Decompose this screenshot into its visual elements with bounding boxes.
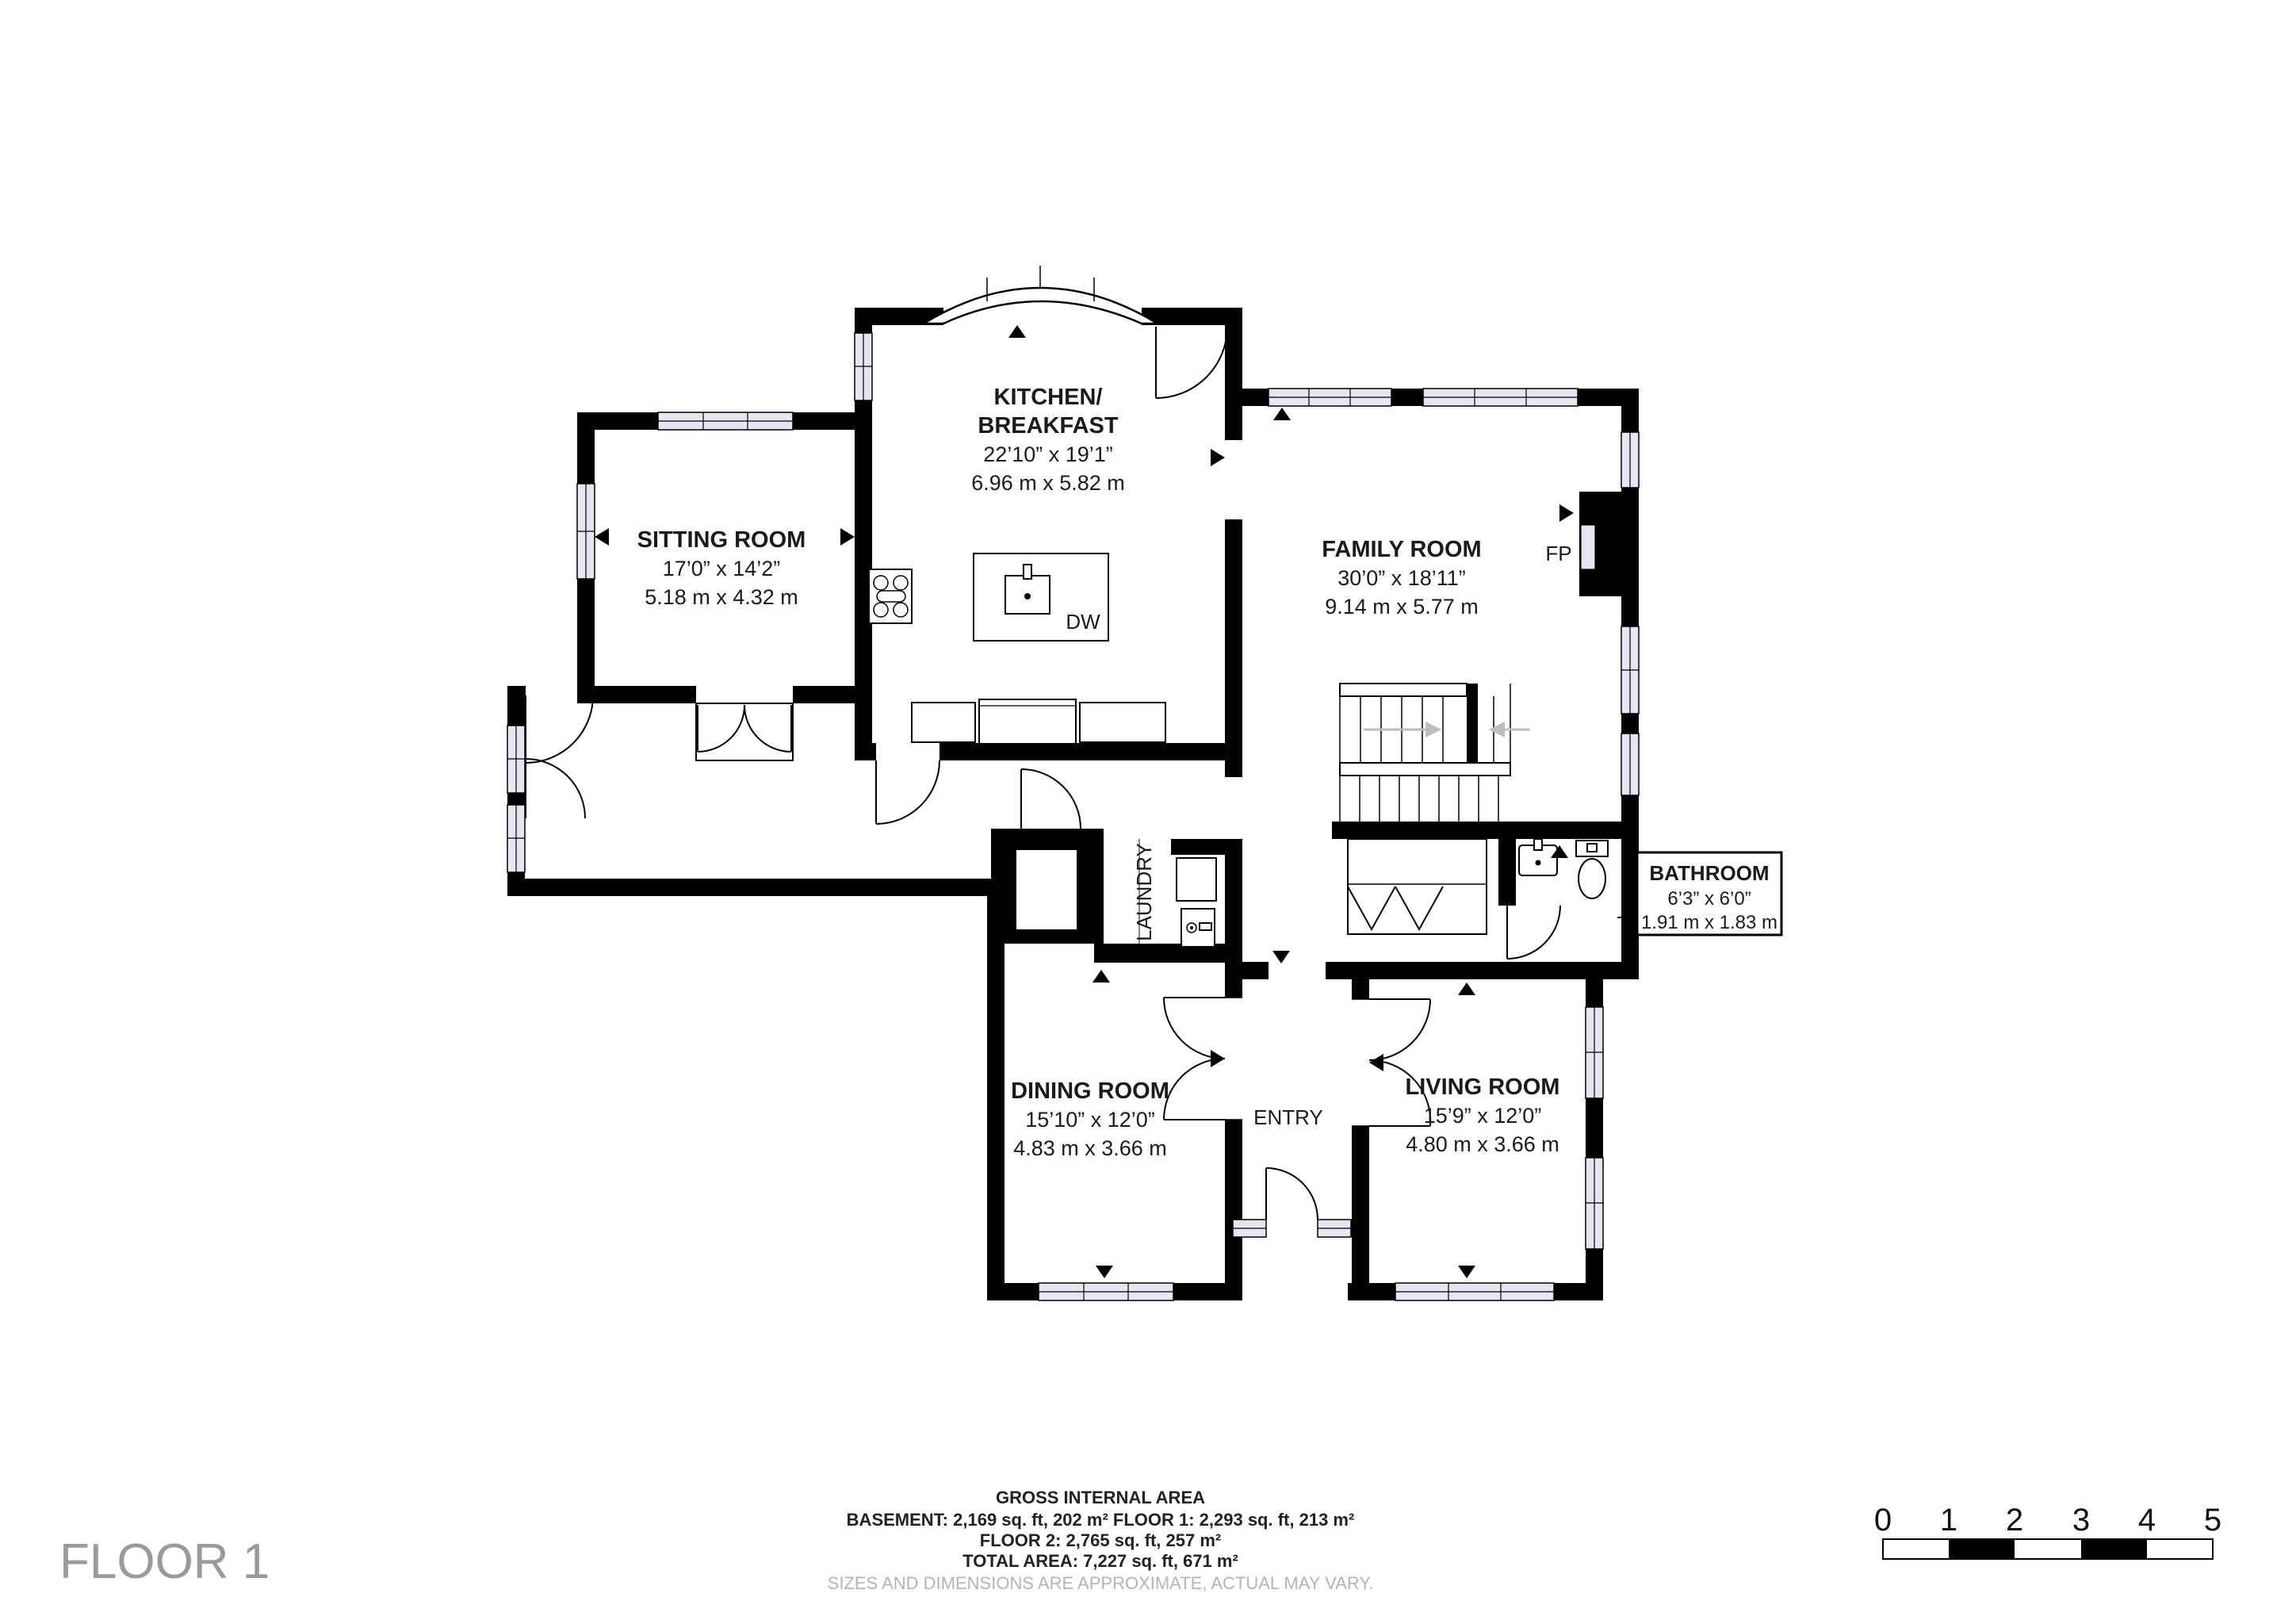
scale-tick: 1 — [1940, 1503, 1957, 1538]
room-name: FAMILY ROOM — [1322, 537, 1481, 562]
door-hall-lower — [526, 759, 585, 818]
french-doors-living — [1352, 999, 1430, 1126]
bathroom-callout: BATHROOM 6’3” x 6’0” 1.91 m x 1.83 m — [1617, 852, 1781, 935]
window-sidelight — [1318, 1220, 1351, 1237]
room-dims-metric: 1.91 m x 1.83 m — [1641, 912, 1777, 933]
window — [1621, 626, 1639, 714]
window — [1586, 1007, 1603, 1098]
stair-direction-arrows — [1364, 722, 1530, 737]
door-sitting-hall — [526, 695, 593, 763]
room-dims-imperial: 22’10” x 19’1” — [983, 442, 1113, 466]
area-line-floor2: FLOOR 2: 2,765 sq. ft, 257 m² — [980, 1530, 1221, 1550]
room-dims-imperial: 30’0” x 18’11” — [1337, 566, 1466, 590]
room-name: DINING ROOM — [1011, 1078, 1169, 1104]
room-dims-metric: 5.18 m x 4.32 m — [645, 585, 798, 609]
scale-tick: 0 — [1874, 1503, 1892, 1538]
dryer-icon — [1181, 909, 1215, 947]
scale-bar-segment — [1949, 1539, 2015, 1559]
scale-tick: 2 — [2006, 1503, 2023, 1538]
room-name: SITTING ROOM — [637, 527, 806, 553]
fireplace-label: FP — [1545, 542, 1571, 565]
kitchen-counters — [912, 699, 1165, 744]
bay-window-icon — [924, 266, 1158, 324]
room-dims-imperial: 15’9” x 12’0” — [1424, 1104, 1542, 1128]
label-kitchen: KITCHEN/ BREAKFAST 22’10” x 19’1” 6.96 m… — [971, 385, 1125, 495]
kitchen-island: DW — [974, 553, 1108, 641]
room-dims-imperial: 15’10” x 12’0” — [1025, 1108, 1155, 1132]
scale-tick: 5 — [2204, 1503, 2221, 1538]
dishwasher-label: DW — [1066, 610, 1100, 634]
window-sidelight — [1233, 1220, 1266, 1237]
window — [577, 484, 595, 579]
closet-double-doors — [696, 703, 793, 760]
window — [1039, 1283, 1173, 1300]
area-summary-title: GROSS INTERNAL AREA — [996, 1488, 1205, 1507]
label-sitting: SITTING ROOM 17’0” x 14’2” 5.18 m x 4.32… — [637, 527, 806, 609]
stair-mid-rail — [1340, 763, 1510, 776]
washer-icon — [1177, 858, 1216, 901]
room-name: LIVING ROOM — [1406, 1074, 1560, 1100]
window — [1423, 389, 1578, 406]
room-name: BREAKFAST — [978, 413, 1119, 439]
stair-landing-rail — [1340, 684, 1467, 696]
floor-title: FLOOR 1 — [59, 1534, 270, 1589]
firebox — [1581, 525, 1595, 569]
room-dims-metric: 6.96 m x 5.82 m — [971, 471, 1125, 495]
stove-icon — [869, 569, 912, 623]
toilet-icon — [1576, 841, 1608, 898]
room-dims-metric: 4.83 m x 3.66 m — [1013, 1136, 1167, 1160]
scale-bar: 0 1 2 3 4 5 — [1874, 1503, 2221, 1559]
door-kitchen-hall — [876, 760, 939, 824]
window — [1395, 1283, 1554, 1300]
door-closet-midhall — [1021, 769, 1081, 829]
area-summary: GROSS INTERNAL AREA BASEMENT: 2,169 sq. … — [828, 1488, 1374, 1593]
room-dims-imperial: 6’3” x 6’0” — [1667, 888, 1751, 910]
scale-bar-segment — [2081, 1539, 2147, 1559]
window — [1621, 733, 1639, 795]
label-dining: DINING ROOM 15’10” x 12’0” 4.83 m x 3.66… — [1011, 1078, 1169, 1160]
disclaimer-text: SIZES AND DIMENSIONS ARE APPROXIMATE, AC… — [828, 1573, 1374, 1593]
front-door — [1266, 1168, 1318, 1220]
floorplan-canvas: DW — [0, 0, 2296, 1624]
room-dims-metric: 4.80 m x 3.66 m — [1406, 1132, 1559, 1156]
french-doors-dining — [1164, 998, 1242, 1120]
area-line-basement-floor1: BASEMENT: 2,169 sq. ft, 202 m² FLOOR 1: … — [847, 1510, 1355, 1530]
door-kitchen — [1156, 327, 1227, 398]
label-entry: ENTRY — [1253, 1105, 1323, 1129]
label-laundry: LAUNDRY — [1132, 843, 1156, 941]
floorplan-page: DW — [0, 0, 2296, 1624]
bathroom-fixtures — [1519, 839, 1608, 898]
label-living: LIVING ROOM 15’9” x 12’0” 4.80 m x 3.66 … — [1406, 1074, 1560, 1156]
area-line-total: TOTAL AREA: 7,227 sq. ft, 671 m² — [962, 1551, 1238, 1571]
window — [1269, 389, 1391, 406]
window — [1586, 1158, 1603, 1249]
door-bathroom — [1507, 906, 1560, 959]
scale-tick: 4 — [2138, 1503, 2156, 1538]
room-name: KITCHEN/ — [994, 385, 1103, 410]
label-family: FAMILY ROOM 30’0” x 18’11” 9.14 m x 5.77… — [1322, 537, 1481, 619]
window — [507, 726, 525, 793]
staircase — [1340, 684, 1530, 822]
closet-interior — [1016, 850, 1077, 929]
room-name: BATHROOM — [1649, 861, 1769, 885]
window — [658, 412, 793, 430]
window — [507, 805, 525, 872]
window — [1621, 432, 1639, 488]
scale-bar-track — [1883, 1539, 2213, 1559]
room-dims-metric: 9.14 m x 5.77 m — [1325, 595, 1479, 619]
kitchen-fixtures: DW — [869, 553, 1165, 744]
bifold-closet-under-stairs — [1348, 839, 1487, 934]
window — [855, 333, 872, 400]
scale-tick: 3 — [2072, 1503, 2090, 1538]
room-dims-imperial: 17’0” x 14’2” — [663, 557, 781, 580]
